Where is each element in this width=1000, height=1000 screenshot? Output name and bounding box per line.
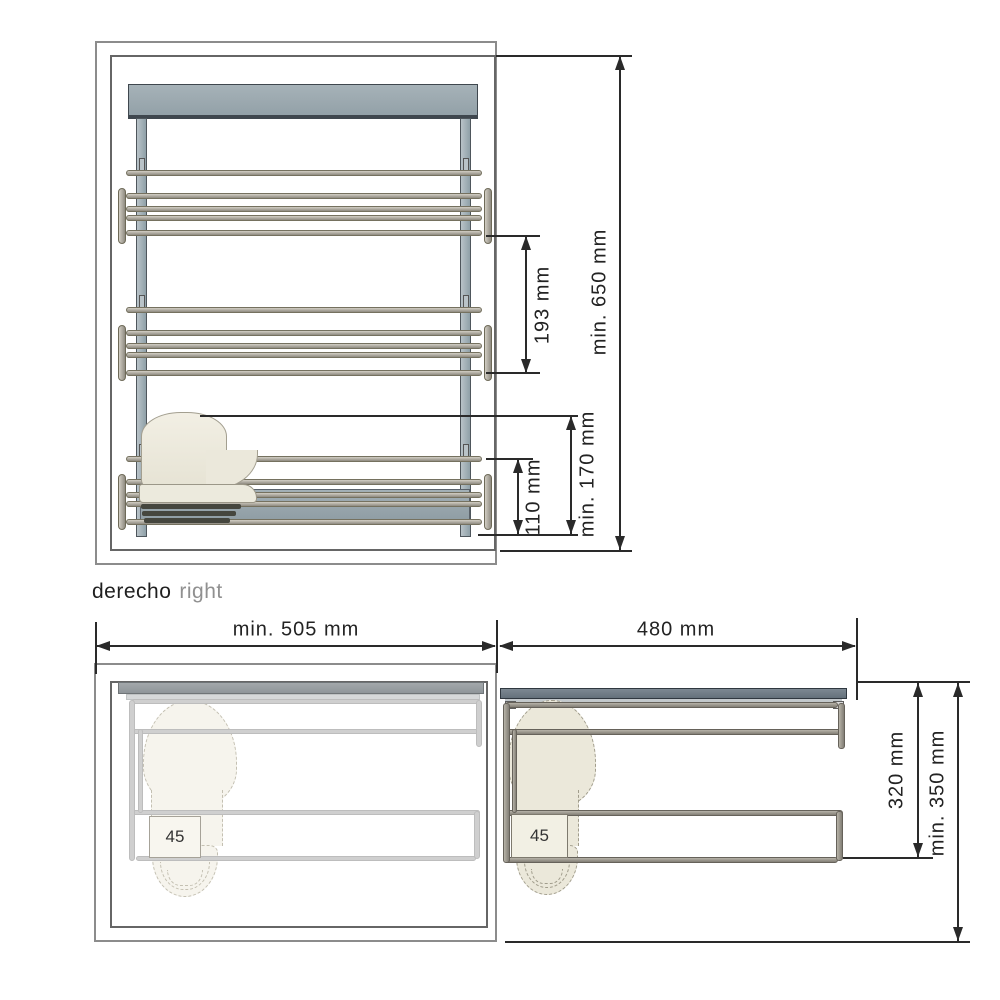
front-right-post [460,118,471,537]
arrowhead-up [566,416,576,430]
arrowhead-down [513,520,523,534]
arrowhead-down [913,843,923,857]
dim-label-tier-spacing: 193 mm [532,266,555,344]
arrowhead-right [842,641,856,651]
tier2-rod [126,352,482,358]
shoe-size-label: 45 [166,827,185,847]
tier3-left-bracket [118,474,126,530]
dim-label-bottom-rack-height: 110 mm [523,459,546,536]
arrowhead-left [499,641,513,651]
plan-closed-front-rail [118,682,484,694]
plan-closed-left-bracket [129,700,135,861]
tier1-rod [126,230,482,236]
ext-line-650-bottom [500,550,632,552]
shoe-size-badge: 45 [149,816,201,858]
arrowhead-up [953,683,963,697]
tier2-left-bracket [118,325,126,381]
dim-line-505 [97,645,495,647]
arrowhead-up [615,56,625,70]
boot-sole [139,484,257,503]
plan-closed-right-bracket [476,700,482,747]
shoe-size-badge: 45 [511,814,568,858]
dim-line-193 [525,236,527,373]
dim-line-650 [619,56,621,550]
plan-closed-rail [132,699,480,704]
tier1-rod [126,206,482,212]
arrowhead-up [521,236,531,250]
tier1-left-bracket [118,188,126,244]
arrowhead-right [482,641,496,651]
dim-line-480 [500,645,855,647]
ext-line-170-top [200,415,578,417]
tier3-right-bracket [484,474,492,530]
front-top-panel [128,84,478,119]
arrowhead-left [96,641,110,651]
plan-extended-right-bracket [836,811,843,861]
tier1-rod [126,193,482,199]
plan-extended-rail [503,729,843,735]
boot-sole-stripe [142,511,236,516]
plan-extended-front-rail [500,688,847,699]
plan-extended-right-bracket [838,703,845,749]
plan-extended-rail [505,702,838,708]
tier2-rod [126,330,482,336]
tick-320-bottom [843,857,933,859]
tier2-rod [126,370,482,376]
boot-sole-stripe [141,504,241,509]
plan-closed-right-bracket [474,811,480,859]
dim-label-bottom-clearance: min. 170 mm [577,411,600,538]
ext-line-193-top [486,235,540,237]
boot-sole-stripe [144,518,230,523]
arrowhead-down [615,536,625,550]
plan-extended-left-bracket [503,703,510,863]
dim-label-extension: 480 mm [637,619,715,642]
arrowhead-down [521,359,531,373]
dim-label-depth-closed: min. 505 mm [233,619,360,642]
arrowhead-down [566,520,576,534]
arrowhead-up [513,459,523,473]
ext-line-193-bottom [486,372,540,374]
view-caption: derechoright [92,580,223,604]
plan-closed-rail [130,729,480,734]
dim-line-170 [570,416,572,534]
shoe-size-label: 45 [530,826,549,846]
ext-line-480-right [856,618,858,700]
diagram-canvas: 193 mm min. 650 mm 110 mm min. 170 mm de… [0,0,1000,1000]
arrowhead-up [913,683,923,697]
plan-extended-left-bracket [512,729,517,813]
plan-closed-rail [130,810,480,815]
dim-label-rack-depth: 320 mm [886,731,909,809]
dim-line-350 [957,683,959,941]
tier1-rod [126,170,482,176]
ext-line-shared-front [496,620,498,673]
caption-english: right [179,580,222,603]
caption-spanish: derecho [92,580,171,603]
arrowhead-down [953,927,963,941]
tier2-rod [126,307,482,313]
tier1-rod [126,215,482,221]
bottom-plane-line [505,941,970,943]
tier2-rod [126,343,482,349]
ext-line-650-top [496,55,632,57]
dim-label-total-height: min. 650 mm [589,229,612,356]
plan-closed-left-bracket [138,729,143,813]
dim-line-320 [917,683,919,857]
dim-label-min-depth: min. 350 mm [927,730,950,857]
